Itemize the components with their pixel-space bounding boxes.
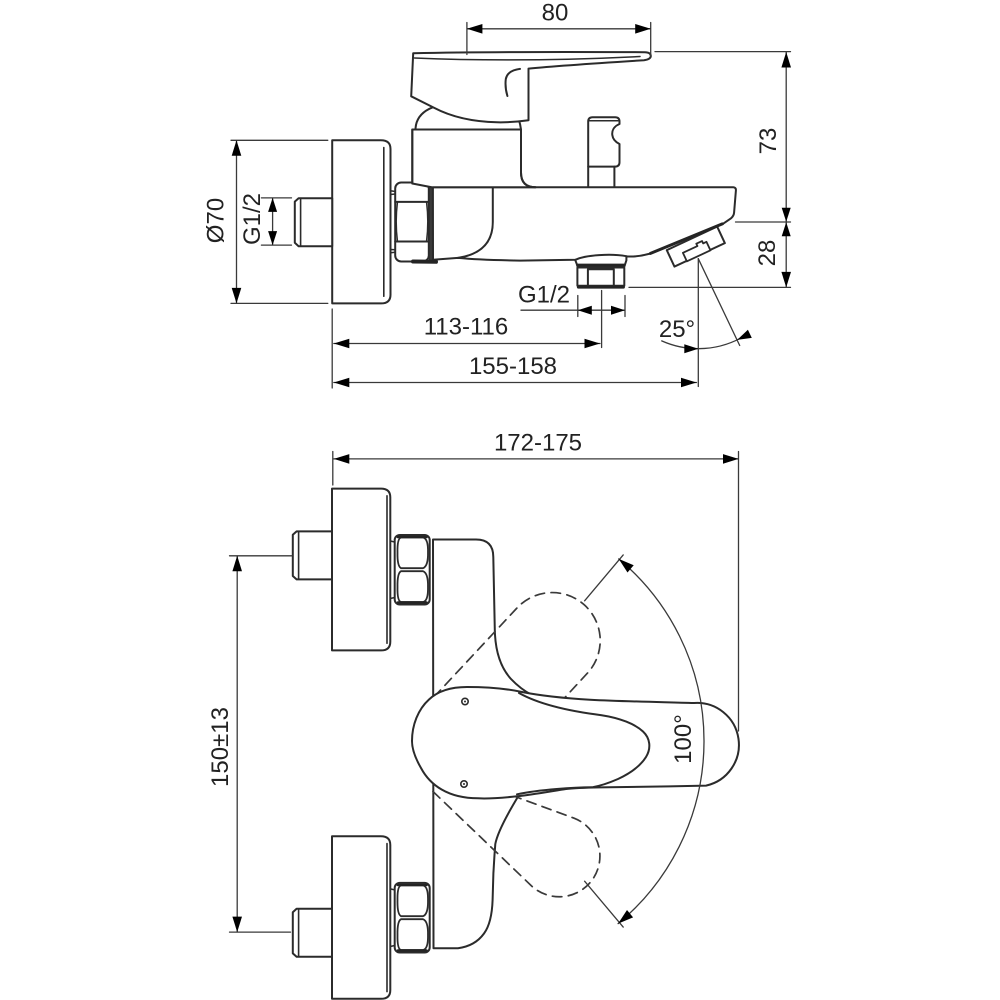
svg-text:150±13: 150±13 [207, 707, 234, 787]
svg-text:80: 80 [542, 0, 569, 27]
svg-text:28: 28 [754, 240, 781, 267]
svg-text:G1/2: G1/2 [518, 282, 570, 309]
svg-text:172-175: 172-175 [494, 430, 582, 457]
svg-text:100°: 100° [670, 714, 697, 764]
svg-text:Ø70: Ø70 [203, 198, 230, 243]
svg-text:113-116: 113-116 [424, 314, 509, 341]
svg-text:155-158: 155-158 [469, 353, 557, 380]
svg-text:73: 73 [755, 128, 782, 155]
svg-text:G1/2: G1/2 [239, 193, 266, 245]
svg-text:25°: 25° [659, 316, 695, 343]
